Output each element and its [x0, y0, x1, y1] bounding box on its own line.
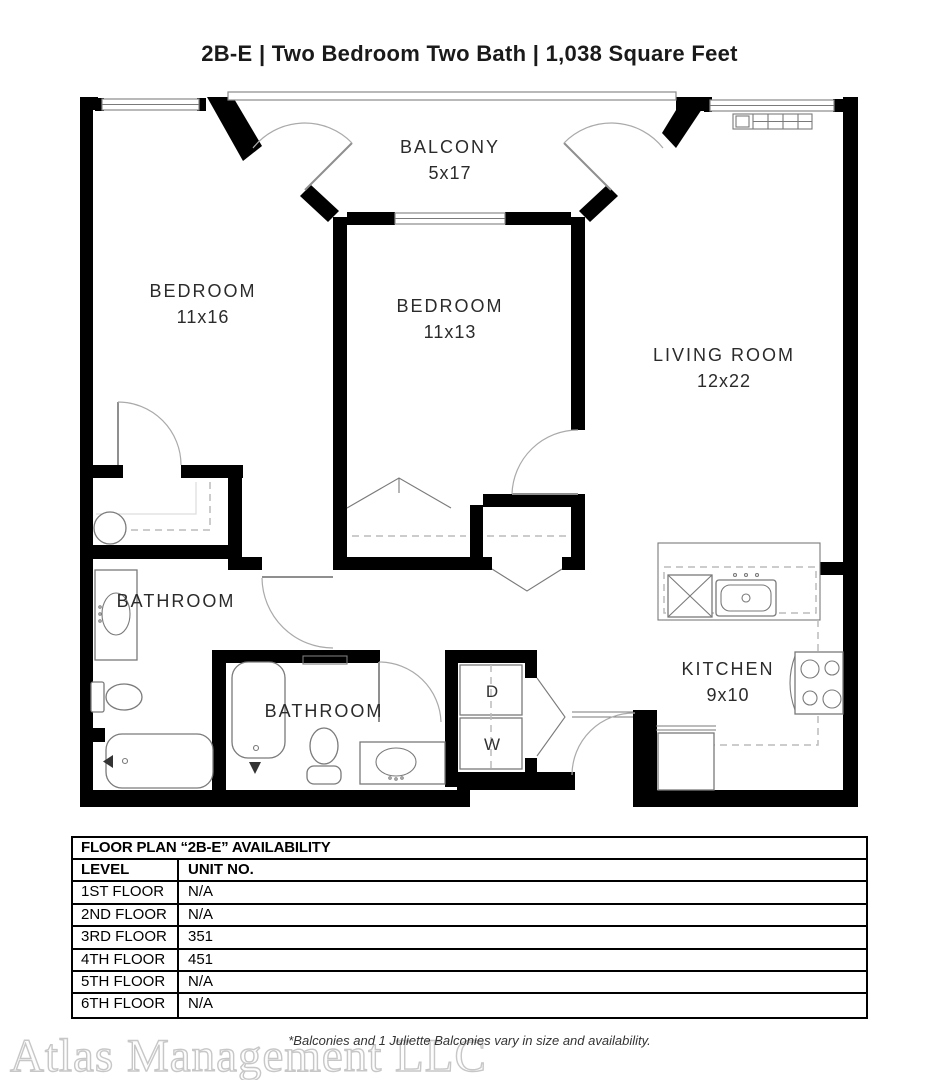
kitchen-label: KITCHEN: [681, 659, 774, 679]
column-header-unit-no: UNIT NO.: [179, 860, 866, 880]
door-bathroom-2: [379, 662, 441, 722]
window-bedroom-1: [102, 99, 199, 110]
kitchen-dims: 9x10: [706, 685, 749, 705]
level-cell: 6TH FLOOR: [73, 994, 179, 1016]
bathroom-1-label: BATHROOM: [117, 591, 236, 611]
availability-table-header: LEVEL UNIT NO.: [73, 860, 866, 882]
window-living-room: [710, 100, 834, 111]
door-bedroom-2: [512, 430, 578, 494]
balcony-railing: [228, 92, 676, 100]
stove-icon: [790, 652, 843, 714]
bedroom-2-label: BEDROOM: [396, 296, 503, 316]
door-bathroom-1: [262, 577, 333, 648]
dryer-label: D: [486, 682, 498, 701]
bathroom-2-label: BATHROOM: [265, 701, 384, 721]
vanity-sink-2-icon: [360, 742, 445, 784]
kitchen-sink-icon: [716, 574, 776, 617]
bedroom-1-dims: 11x16: [177, 307, 230, 327]
unit-no-cell: N/A: [179, 994, 866, 1016]
table-row: 5TH FLOOR N/A: [73, 972, 866, 994]
bathtub-1-icon: [103, 734, 213, 788]
refrigerator-icon: [656, 726, 716, 790]
door-balcony-right: [564, 123, 663, 190]
washer-label: W: [484, 735, 500, 754]
window-bedroom-2: [395, 213, 505, 224]
table-row: 4TH FLOOR 451: [73, 950, 866, 972]
unit-no-cell: N/A: [179, 905, 866, 925]
level-cell: 1ST FLOOR: [73, 882, 179, 902]
level-cell: 3RD FLOOR: [73, 927, 179, 947]
disclaimer-text: *Balconies and 1 Juliette Balconies vary…: [0, 1033, 939, 1048]
level-cell: 4TH FLOOR: [73, 950, 179, 970]
dishwasher-icon: [668, 575, 712, 617]
unit-no-cell: N/A: [179, 972, 866, 992]
bifold-closet-bedroom-2: [347, 478, 451, 508]
floor-plan-page: 2B-E | Two Bedroom Two Bath | 1,038 Squa…: [0, 0, 939, 1080]
balcony-dims: 5x17: [428, 163, 471, 183]
unit-no-cell: N/A: [179, 882, 866, 902]
toilet-1-icon: [91, 682, 142, 712]
unit-no-cell: 351: [179, 927, 866, 947]
door-walkin-closet: [118, 402, 181, 465]
unit-no-cell: 451: [179, 950, 866, 970]
table-row: 2ND FLOOR N/A: [73, 905, 866, 927]
door-entry: [572, 712, 635, 775]
table-row: 1ST FLOOR N/A: [73, 882, 866, 904]
column-header-level: LEVEL: [73, 860, 179, 880]
water-heater-icon: [94, 512, 126, 544]
baseboard-heater: [733, 114, 812, 129]
door-balcony-left: [253, 123, 352, 190]
level-cell: 2ND FLOOR: [73, 905, 179, 925]
living-room-dims: 12x22: [697, 371, 751, 391]
bifold-hall-closet: [492, 569, 562, 591]
availability-table: FLOOR PLAN “2B-E” AVAILABILITY LEVEL UNI…: [71, 836, 868, 1019]
toilet-2-icon: [307, 728, 341, 784]
table-row: 6TH FLOOR N/A: [73, 994, 866, 1016]
living-room-label: LIVING ROOM: [653, 345, 795, 365]
availability-table-title: FLOOR PLAN “2B-E” AVAILABILITY: [73, 838, 866, 860]
bedroom-1-label: BEDROOM: [149, 281, 256, 301]
kitchen-counter: [658, 543, 820, 745]
bifold-laundry-closet: [537, 678, 565, 756]
balcony-label: BALCONY: [400, 137, 500, 157]
bedroom-2-dims: 11x13: [424, 322, 477, 342]
vanity-sink-1-icon: [95, 570, 137, 660]
level-cell: 5TH FLOOR: [73, 972, 179, 992]
table-row: 3RD FLOOR 351: [73, 927, 866, 949]
